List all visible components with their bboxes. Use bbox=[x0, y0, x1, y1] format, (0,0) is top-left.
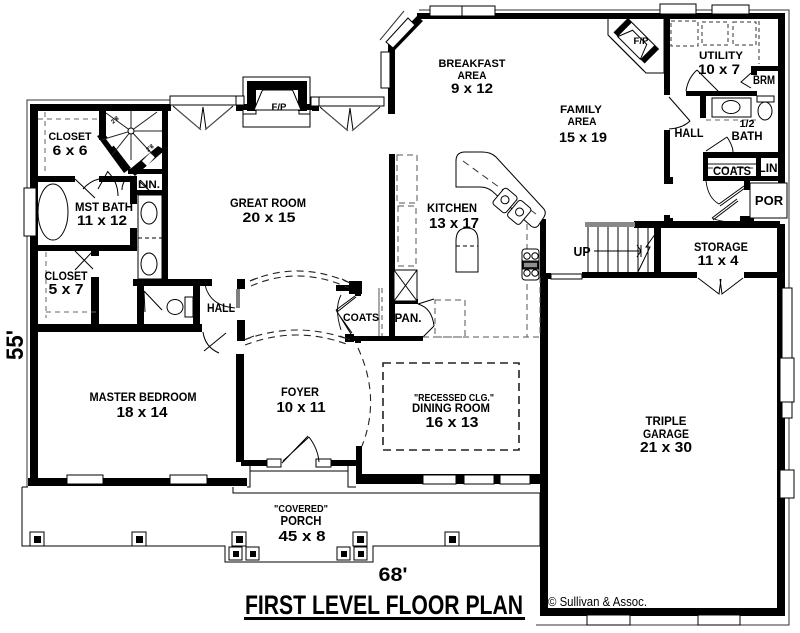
svg-text:10 x 7: 10 x 7 bbox=[698, 61, 740, 77]
svg-text:16 x 13: 16 x 13 bbox=[426, 415, 479, 431]
svg-text:20 x 15: 20 x 15 bbox=[243, 209, 296, 225]
svg-text:HALL: HALL bbox=[207, 303, 235, 315]
svg-text:PAN.: PAN. bbox=[395, 313, 422, 325]
svg-text:18 x 14: 18 x 14 bbox=[117, 405, 168, 421]
svg-text:KITCHEN: KITCHEN bbox=[427, 203, 477, 215]
svg-text:BRM: BRM bbox=[753, 75, 775, 87]
svg-text:TRIPLE: TRIPLE bbox=[646, 416, 687, 428]
svg-text:MASTER BEDROOM: MASTER BEDROOM bbox=[90, 392, 197, 404]
svg-text:COATS: COATS bbox=[343, 312, 379, 324]
svg-text:1/2: 1/2 bbox=[740, 118, 755, 130]
svg-text:HALL: HALL bbox=[675, 126, 704, 140]
svg-text:UP: UP bbox=[574, 244, 591, 259]
svg-text:LIN.: LIN. bbox=[138, 179, 160, 191]
svg-text:BATH: BATH bbox=[732, 131, 763, 143]
svg-text:AREA: AREA bbox=[568, 116, 597, 128]
svg-text:45 x 8: 45 x 8 bbox=[279, 529, 326, 545]
svg-text:9 x 12: 9 x 12 bbox=[451, 80, 493, 96]
svg-text:FAMILY: FAMILY bbox=[560, 104, 603, 116]
svg-text:FOYER: FOYER bbox=[281, 387, 320, 399]
svg-text:COATS: COATS bbox=[713, 166, 751, 178]
svg-text:11 x 4: 11 x 4 bbox=[698, 252, 739, 268]
svg-text:15 x 19: 15 x 19 bbox=[559, 129, 607, 145]
svg-text:13 x 17: 13 x 17 bbox=[429, 216, 479, 232]
svg-text:BREAKFAST: BREAKFAST bbox=[439, 58, 506, 70]
svg-text:11 x 12: 11 x 12 bbox=[77, 212, 127, 228]
svg-text:POR: POR bbox=[755, 193, 784, 208]
svg-text:21 x 30: 21 x 30 bbox=[640, 440, 692, 456]
svg-text:© Sullivan & Assoc.: © Sullivan & Assoc. bbox=[548, 595, 647, 609]
svg-text:10 x 11: 10 x 11 bbox=[277, 400, 326, 416]
svg-text:LIN: LIN bbox=[759, 163, 778, 175]
svg-text:F/P: F/P bbox=[634, 36, 649, 46]
svg-text:5 x 7: 5 x 7 bbox=[49, 282, 84, 298]
svg-text:68': 68' bbox=[379, 565, 408, 586]
svg-text:PORCH: PORCH bbox=[281, 514, 322, 528]
svg-text:DINING ROOM: DINING ROOM bbox=[412, 401, 490, 415]
svg-text:FIRST LEVEL FLOOR PLAN: FIRST LEVEL FLOOR PLAN bbox=[245, 590, 523, 620]
svg-text:F/P: F/P bbox=[272, 102, 287, 112]
svg-text:55': 55' bbox=[2, 330, 29, 360]
svg-text:6 x 6: 6 x 6 bbox=[53, 142, 88, 158]
